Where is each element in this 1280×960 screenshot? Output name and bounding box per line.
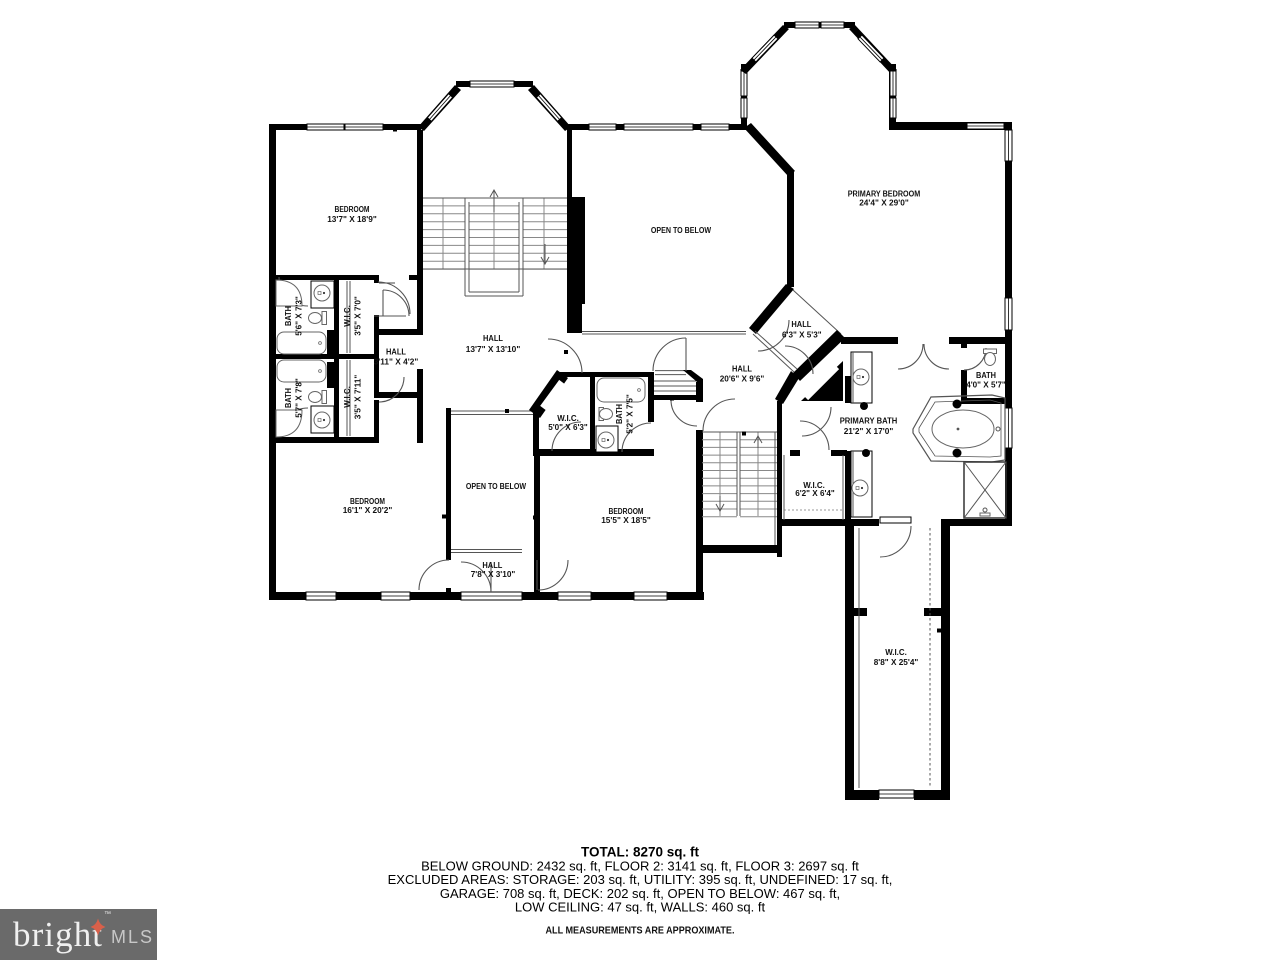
svg-text:5'2" X 7'5": 5'2" X 7'5" bbox=[624, 394, 634, 434]
svg-text:TOTAL: 8270 sq. ft: TOTAL: 8270 sq. ft bbox=[581, 844, 700, 859]
svg-text:HALL: HALL bbox=[386, 347, 406, 357]
svg-text:BATH: BATH bbox=[283, 306, 293, 326]
svg-text:BATH: BATH bbox=[614, 404, 624, 424]
svg-text:PRIMARY BATH: PRIMARY BATH bbox=[840, 416, 898, 426]
svg-text:BATH: BATH bbox=[283, 388, 293, 408]
svg-text:15'5" X 18'5": 15'5" X 18'5" bbox=[601, 515, 651, 525]
svg-text:HALL: HALL bbox=[483, 333, 503, 343]
svg-text:MLS: MLS bbox=[111, 927, 154, 947]
svg-text:21'2" X 17'0": 21'2" X 17'0" bbox=[844, 426, 894, 436]
svg-text:BEDROOM: BEDROOM bbox=[335, 204, 370, 214]
svg-text:6'2" X 6'4": 6'2" X 6'4" bbox=[795, 488, 835, 498]
svg-text:LOW CEILING: 47 sq. ft, WALLS:: LOW CEILING: 47 sq. ft, WALLS: 460 sq. f… bbox=[515, 900, 766, 915]
svg-text:7'8" X 3'10": 7'8" X 3'10" bbox=[471, 569, 516, 579]
svg-text:W.I.C.: W.I.C. bbox=[885, 647, 907, 657]
svg-text:5'6" X 7'3": 5'6" X 7'3" bbox=[293, 296, 303, 336]
svg-text:OPEN TO BELOW: OPEN TO BELOW bbox=[651, 225, 712, 235]
svg-text:24'4" X 29'0": 24'4" X 29'0" bbox=[859, 198, 909, 208]
svg-text:3'11" X 4'2": 3'11" X 4'2" bbox=[374, 357, 419, 367]
svg-text:8'8" X 25'4": 8'8" X 25'4" bbox=[874, 657, 919, 667]
svg-text:4'0" X 5'7": 4'0" X 5'7" bbox=[966, 380, 1006, 390]
svg-text:20'6" X 9'6": 20'6" X 9'6" bbox=[720, 374, 765, 384]
svg-text:5'7" X 7'8": 5'7" X 7'8" bbox=[293, 378, 303, 418]
svg-text:13'7" X 13'10": 13'7" X 13'10" bbox=[466, 344, 521, 354]
svg-text:ALL MEASUREMENTS ARE APPROXIMA: ALL MEASUREMENTS ARE APPROXIMATE. bbox=[546, 926, 735, 937]
svg-text:3'5" X 7'0": 3'5" X 7'0" bbox=[352, 296, 362, 336]
svg-text:3'5" X 7'11": 3'5" X 7'11" bbox=[352, 375, 362, 420]
svg-text:W.I.C.: W.I.C. bbox=[342, 386, 352, 408]
svg-text:W.I.C.: W.I.C. bbox=[342, 305, 352, 327]
svg-text:bright: bright bbox=[13, 915, 102, 954]
svg-text:16'1" X 20'2": 16'1" X 20'2" bbox=[343, 505, 393, 515]
svg-text:OPEN TO BELOW: OPEN TO BELOW bbox=[466, 481, 527, 491]
svg-text:6'3" X 5'3": 6'3" X 5'3" bbox=[782, 329, 822, 339]
svg-text:13'7" X 18'9": 13'7" X 18'9" bbox=[327, 214, 377, 224]
svg-text:HALL: HALL bbox=[791, 319, 811, 329]
svg-text:BATH: BATH bbox=[976, 370, 996, 380]
svg-text:™: ™ bbox=[104, 911, 111, 918]
svg-text:HALL: HALL bbox=[732, 364, 752, 374]
svg-text:5'0" X 6'3": 5'0" X 6'3" bbox=[548, 422, 588, 432]
